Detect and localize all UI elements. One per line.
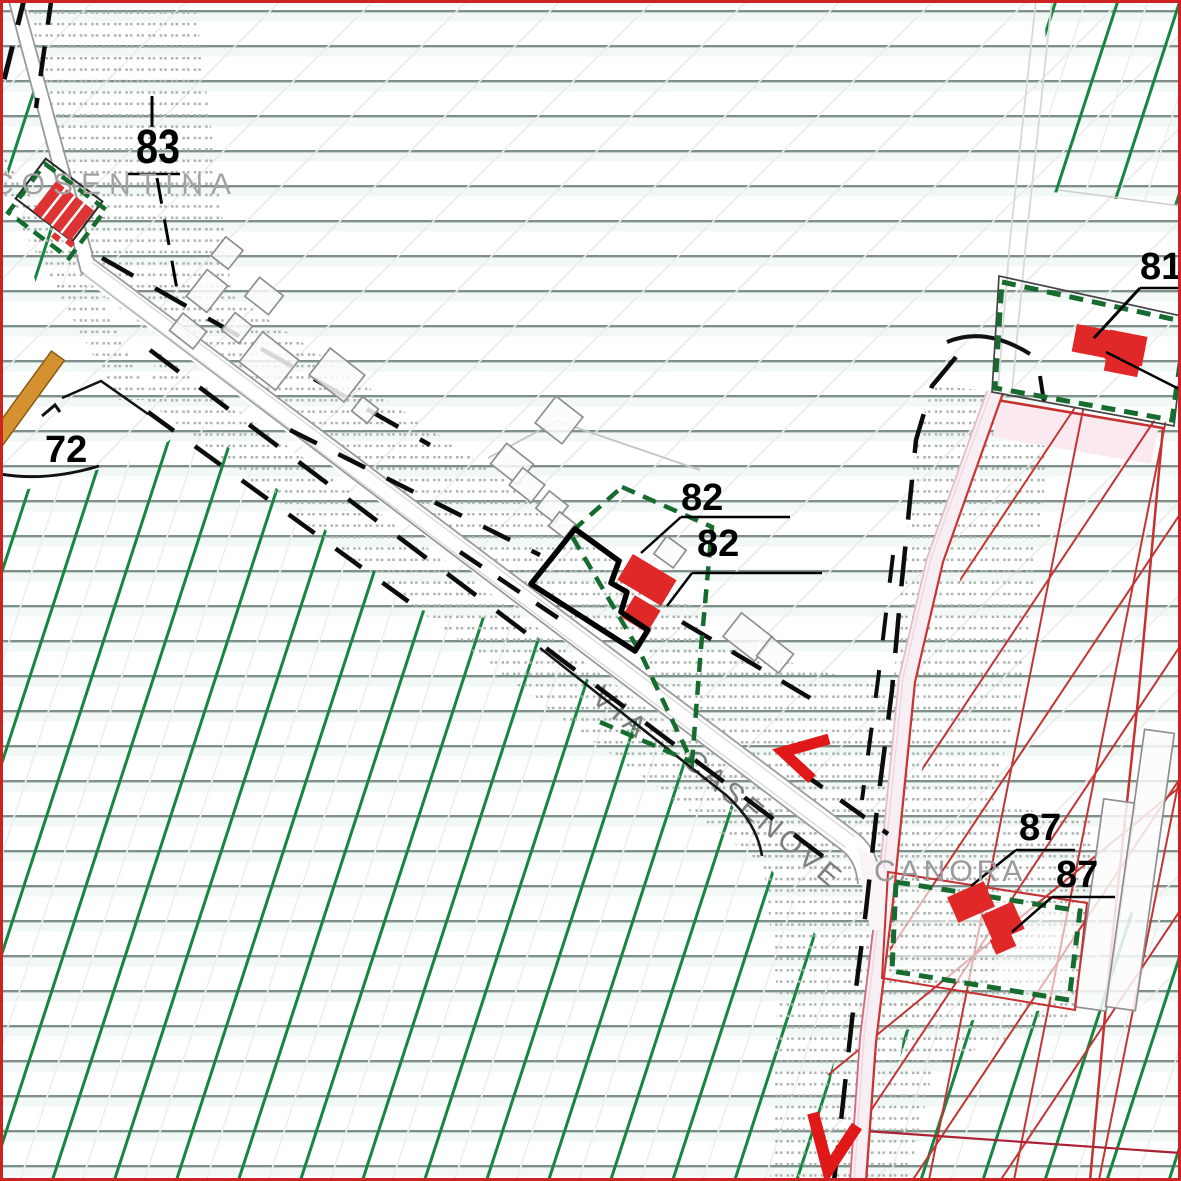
svg-text:87: 87 bbox=[1056, 854, 1098, 896]
svg-text:CANORA: CANORA bbox=[874, 855, 1026, 888]
svg-text:83: 83 bbox=[136, 121, 180, 174]
svg-text:82: 82 bbox=[697, 523, 739, 565]
svg-text:81: 81 bbox=[1140, 246, 1181, 288]
svg-text:COSENTINA: COSENTINA bbox=[0, 168, 239, 201]
svg-text:82: 82 bbox=[681, 477, 723, 519]
svg-text:87: 87 bbox=[1019, 807, 1061, 849]
svg-text:72: 72 bbox=[45, 429, 87, 471]
